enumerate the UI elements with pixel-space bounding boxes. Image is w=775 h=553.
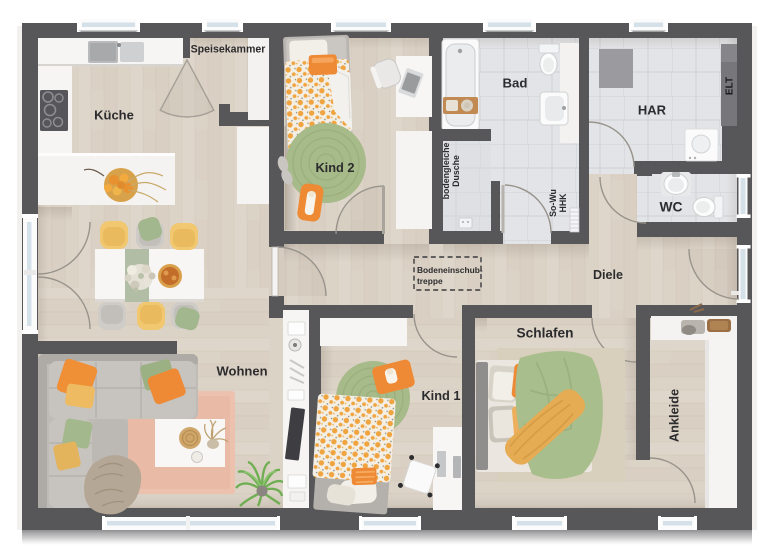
svg-text:WC: WC (660, 199, 683, 214)
svg-text:Wohnen: Wohnen (216, 364, 267, 379)
svg-text:So-Wu: So-Wu (548, 189, 558, 217)
svg-text:bodengleiche: bodengleiche (441, 143, 451, 200)
svg-text:Speisekammer: Speisekammer (191, 43, 266, 55)
svg-text:Kind 2: Kind 2 (315, 160, 354, 175)
svg-text:Kind 1: Kind 1 (421, 388, 460, 403)
svg-text:ELT: ELT (725, 77, 736, 95)
svg-text:Bad: Bad (503, 76, 528, 91)
svg-text:Schlafen: Schlafen (516, 325, 573, 340)
svg-text:Bodeneinschub-: Bodeneinschub- (417, 265, 483, 275)
svg-text:Dusche: Dusche (451, 155, 461, 187)
svg-text:Küche: Küche (94, 108, 134, 123)
svg-text:Diele: Diele (593, 268, 623, 282)
svg-text:HHK: HHK (558, 193, 568, 213)
svg-text:treppe: treppe (417, 276, 443, 286)
svg-text:HAR: HAR (638, 103, 667, 118)
svg-text:Ankleide: Ankleide (667, 389, 682, 442)
